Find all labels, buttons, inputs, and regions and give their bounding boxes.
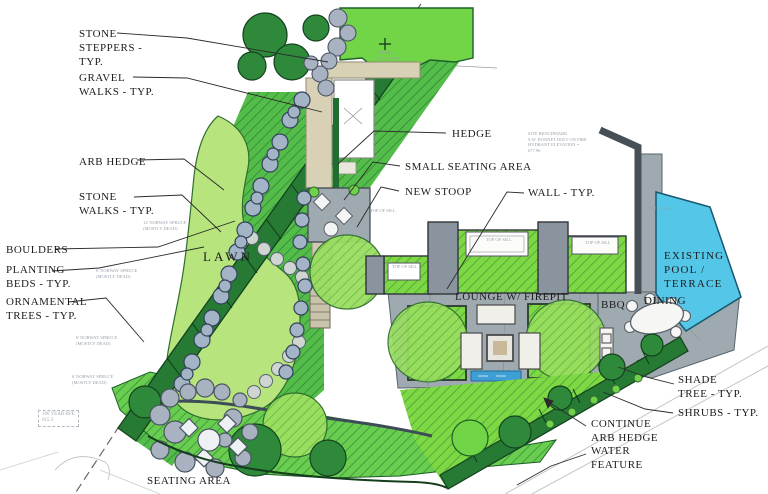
label-wall: WALL - TYP.: [528, 186, 595, 200]
note-top-of-sill: TOP OF SILL: [648, 206, 674, 212]
label-seating-area: SEATING AREA: [147, 474, 231, 488]
top-canopy: [340, 8, 473, 66]
note-100yr-bfe: 100 YEAR BFE 615.3: [38, 410, 79, 427]
label-gravel-walks: GRAVEL WALKS - TYP.: [79, 71, 154, 99]
label-bbq: BBQ: [601, 298, 625, 312]
label-boulders: BOULDERS: [6, 243, 68, 257]
note-norway-spruce-12: 12' NORWAY SPRUCE (MOSTLY DEAD): [143, 220, 187, 231]
note-norway-spruce: 6' NORWAY SPRUCE (MOSTLY DEAD): [76, 335, 117, 346]
label-small-seating: SMALL SEATING AREA: [405, 160, 532, 174]
note-site-benchmark: SITE BENCHMARK S.W. BONNET BOLT ON FIRE …: [528, 131, 588, 154]
note-top-of-sill: TOP OF SILL: [486, 237, 512, 243]
label-continue-arb-hedge: CONTINUE ARB HEDGE: [591, 417, 658, 445]
note-top-of-sill: TOP OF SILL: [585, 240, 611, 246]
water-feature-strip: [471, 371, 521, 381]
label-lawn: LAWN: [203, 249, 253, 266]
label-dining: DINING: [644, 294, 686, 308]
label-hedge: HEDGE: [452, 127, 492, 141]
label-shade-tree: SHADE TREE - TYP.: [678, 373, 742, 401]
note-norway-spruce: 6' NORWAY SPRUCE (MOSTLY DEAD): [72, 374, 113, 385]
label-arb-hedge: ARB HEDGE: [79, 155, 146, 169]
note-pear: 1 PEAR 35' CANOPY: [376, 50, 401, 61]
label-planting-beds: PLANTING BEDS - TYP.: [6, 263, 71, 291]
label-shrubs: SHRUBS - TYP.: [678, 406, 759, 420]
label-ornamental-trees: ORNAMENTAL TREES - TYP.: [6, 295, 87, 323]
label-stone-walks: STONE WALKS - TYP.: [79, 190, 154, 218]
small-seating-terrace: [308, 185, 370, 242]
label-existing-pool: EXISTING POOL / TERRACE: [664, 250, 724, 291]
label-stone-steppers: STONE STEPPERS - TYP.: [79, 27, 142, 69]
label-lounge: LOUNGE W/ FIREPIT: [455, 290, 568, 304]
note-top-of-sill: TOP OF SILL: [370, 208, 396, 214]
label-new-stoop: NEW STOOP: [405, 185, 472, 199]
landscape-site-plan: STONE STEPPERS - TYP. GRAVEL WALKS - TYP…: [0, 0, 768, 494]
note-top-of-sill: TOP OF SILL: [392, 264, 418, 270]
label-water-feature: WATER FEATURE: [591, 444, 643, 472]
note-norway-spruce: 6' NORWAY SPRUCE (MOSTLY DEAD): [96, 268, 137, 279]
